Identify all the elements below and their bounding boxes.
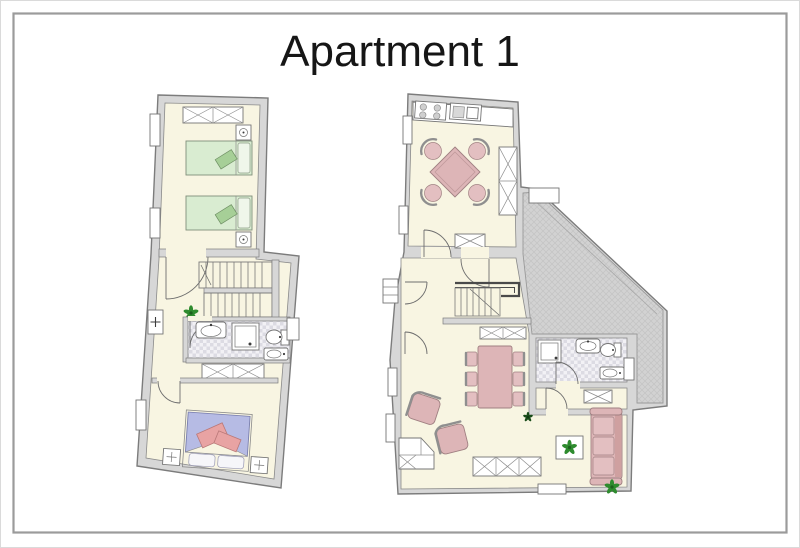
toilet [266,330,289,345]
single-bed [186,196,252,230]
sideboard [473,457,541,476]
cabinet [584,390,612,403]
door-opening [166,248,206,258]
washbasin [576,339,600,353]
window [538,484,566,494]
bidet [264,348,288,360]
floorplan-page: Apartment 1 [0,0,800,548]
radiator [148,310,163,334]
window [386,414,395,442]
square-dining-table [421,139,489,205]
pillow [217,455,244,469]
kitchen-sink [450,103,482,121]
right-floorplan [383,94,667,495]
window [287,318,299,340]
floorplan-drawing: Apartment 1 [0,0,800,548]
toilet [601,343,622,357]
entry-stoop [383,279,398,303]
coffee-table [556,436,583,459]
window [150,208,160,238]
window [150,114,160,146]
bathroom [183,316,299,363]
window [399,206,408,234]
left-floorplan [136,95,299,488]
washbasin [196,322,226,338]
window [136,400,146,430]
sofa [590,408,622,485]
nightstand-lamp [163,448,181,465]
page-title: Apartment 1 [280,27,520,76]
window [624,358,634,380]
wardrobe [183,107,243,123]
window [529,188,559,203]
window [403,116,412,144]
single-bed [186,141,252,175]
wardrobe [202,364,264,380]
nightstand-lamp [236,232,251,247]
under-stair-cabinet [480,327,526,339]
tall-cabinet [499,147,517,215]
door-opening [546,408,568,416]
door-opening [157,377,180,384]
storage-floor [536,388,627,409]
pillow [189,453,216,467]
window [388,368,397,396]
door-opening [461,247,489,258]
long-dining-table [466,346,524,408]
cabinet [455,234,485,248]
nightstand-lamp [236,125,251,140]
door-opening [556,381,580,389]
nightstand-lamp [250,457,268,474]
stove [415,101,447,120]
shower [538,340,561,363]
bidet [600,367,624,379]
door-opening [421,247,451,258]
shower [232,323,259,350]
